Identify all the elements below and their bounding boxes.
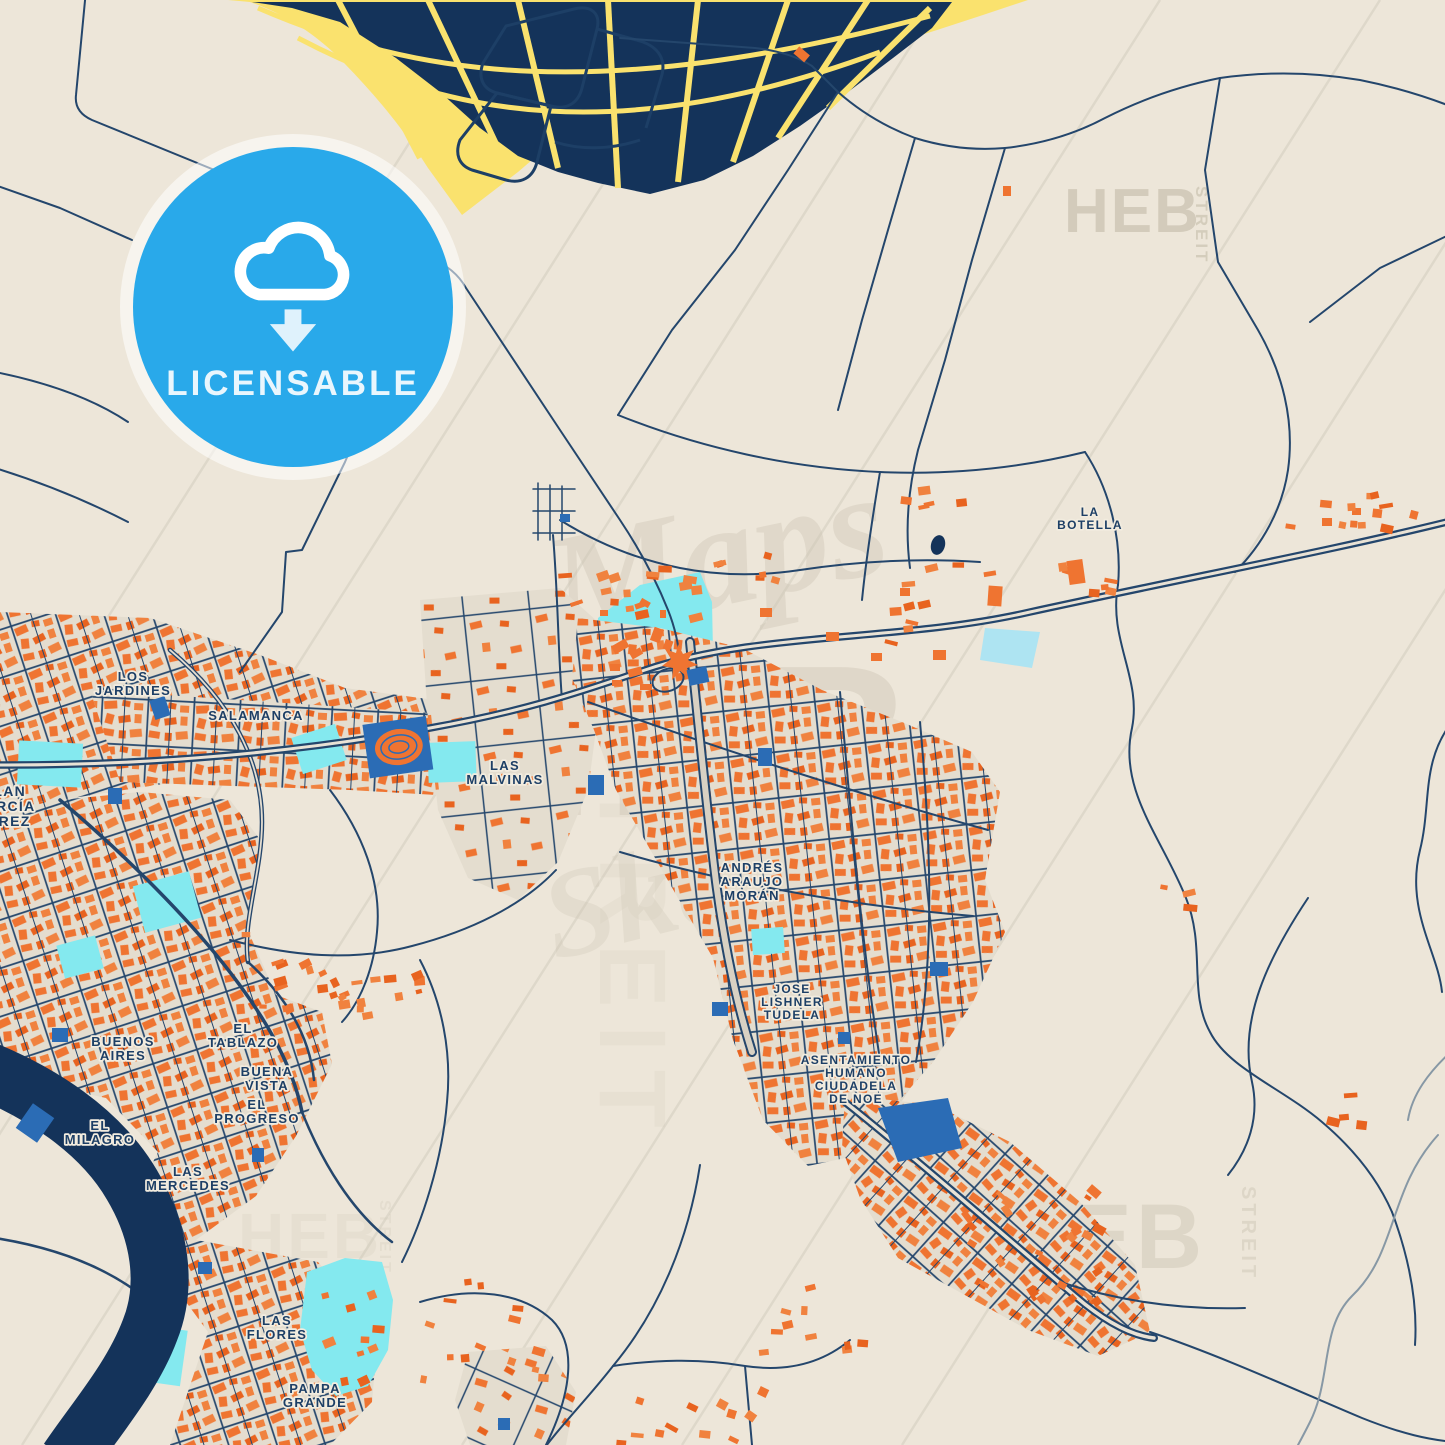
district-label-buenos-aires: BUENOSAIRES (91, 1034, 154, 1063)
watermark-text: STREIT (1237, 1186, 1259, 1281)
district-label-salamanca: SALAMANCA (208, 708, 303, 723)
licensable-badge-label: LICENSABLE (166, 364, 420, 404)
district-label-andres-araujo-moran: ANDRÉSARAUJOMORÁN (721, 860, 784, 903)
watermark-text: HEB (1064, 177, 1201, 246)
district-label-buena-vista: BUENAVISTA (241, 1064, 294, 1093)
licensable-badge[interactable]: LICENSABLE (133, 147, 453, 467)
map-canvas: MapsHEBSTREITSketchHEBSTREITHEBSTREITHEB… (0, 0, 1445, 1445)
stadium (362, 716, 433, 778)
cloud-download-icon (214, 204, 372, 362)
district-label-pampa-grande: PAMPAGRANDE (283, 1381, 347, 1410)
